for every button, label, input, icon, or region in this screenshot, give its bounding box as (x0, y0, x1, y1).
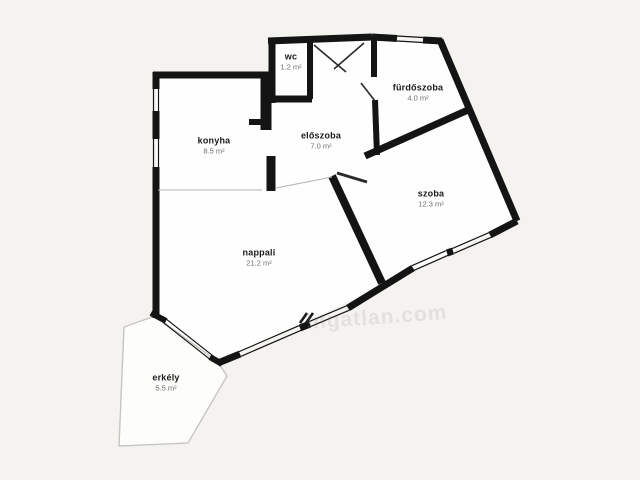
floor-plan-stage: wc 1.2 m² fürdőszoba 4.0 m² konyha 8.5 m… (0, 0, 640, 480)
floor-plan-svg (0, 0, 640, 480)
